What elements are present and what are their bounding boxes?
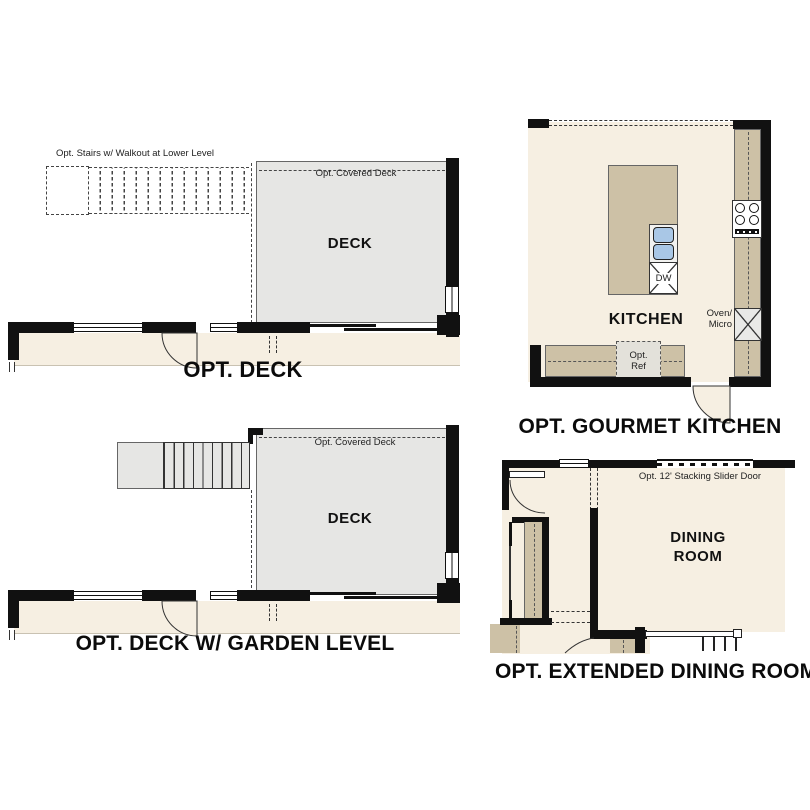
sliding-door-panel <box>310 324 376 327</box>
knob-dot <box>737 231 739 233</box>
exterior-window <box>210 323 238 332</box>
cabinet-dashed-line <box>516 626 517 653</box>
cooktop-burners <box>735 203 759 225</box>
panel-caption-extended-dining: OPT. EXTENDED DINING ROOM <box>495 660 795 684</box>
dining-top-window <box>559 459 589 468</box>
corner-wall-block <box>437 315 460 335</box>
dining-label-line2: ROOM <box>674 548 723 565</box>
opening-dashed-marks <box>269 336 277 353</box>
exterior-wall-segment <box>142 590 196 601</box>
floorplan-options-sheet: Opt. Stairs w/ Walkout at Lower Level Op… <box>0 0 810 810</box>
counter-center-dashed <box>548 361 682 362</box>
covered-deck-label: Opt. Covered Deck <box>266 168 446 179</box>
exterior-window <box>210 591 238 600</box>
burner-icon <box>735 203 745 213</box>
exterior-window <box>73 323 143 332</box>
sink-basin <box>653 244 674 260</box>
baluster <box>713 637 715 651</box>
closet-shelf <box>524 522 542 618</box>
dining-left-wall <box>502 462 509 510</box>
deck-edge-dashed <box>251 490 252 593</box>
exterior-wall-stub <box>8 322 19 360</box>
deck-right-wall <box>446 425 459 552</box>
sink-basin <box>653 227 674 243</box>
deck-right-wall <box>446 158 459 286</box>
wall-tick-marks <box>9 362 15 372</box>
dining-top-wall <box>502 460 560 468</box>
stair-treads-dashed <box>89 167 249 214</box>
cooktop <box>732 200 762 238</box>
oven-micro-cabinet <box>734 308 762 341</box>
oven-label-line2: Micro <box>709 319 732 330</box>
closet-right-wall <box>542 517 549 621</box>
ref-label-line1: Opt. <box>630 350 648 361</box>
burner-icon <box>749 215 759 225</box>
shelf-dashed-line <box>534 524 535 616</box>
island-sink <box>649 224 678 263</box>
opening-dashed-marks <box>269 604 277 621</box>
deck-right-window <box>445 286 459 313</box>
dining-room-label: DINING ROOM <box>648 528 748 566</box>
stair-treads <box>163 442 250 489</box>
cabinet <box>490 624 520 653</box>
burner-icon <box>735 215 745 225</box>
stair-landing-dashed <box>46 166 89 215</box>
ref-label-line2: Ref <box>631 361 646 372</box>
deck-room-label: DECK <box>300 235 400 252</box>
door-swing <box>509 474 546 514</box>
panel-caption-deck: OPT. DECK <box>93 357 393 383</box>
knob-dot <box>749 231 751 233</box>
slider-door-dashes <box>657 463 753 466</box>
burner-icon <box>749 203 759 213</box>
dining-top-wall <box>753 460 795 468</box>
covered-deck-label: Opt. Covered Deck <box>270 437 440 448</box>
deck-right-window <box>445 552 459 579</box>
closet-bottom-wall <box>500 618 552 625</box>
dining-middle-wall <box>590 508 598 636</box>
exterior-wall-segment <box>237 590 310 601</box>
knob-dot <box>743 231 745 233</box>
ref-label: Opt. Ref <box>630 350 648 372</box>
kitchen-bottom-wall <box>729 377 771 387</box>
opening-dashed <box>551 611 590 623</box>
stair-railing <box>645 631 742 637</box>
baluster <box>724 637 726 651</box>
kitchen-right-wall <box>761 120 771 383</box>
kitchen-wall-stub <box>528 119 549 128</box>
oven-label-line1: Oven/ <box>707 308 732 319</box>
sliding-door-panel <box>344 596 437 599</box>
stair-landing <box>117 442 164 489</box>
panel-caption-gourmet-kitchen: OPT. GOURMET KITCHEN <box>500 415 800 439</box>
exterior-wall-stub <box>8 590 19 628</box>
dishwasher-label: DW <box>655 273 673 284</box>
kitchen-top-dashed-opening <box>549 120 733 126</box>
door-swing-small <box>565 636 595 654</box>
stair-side-wall <box>635 627 645 653</box>
wall-tick-marks <box>9 630 15 640</box>
closet-left-wall <box>509 522 512 546</box>
cased-opening-dashed <box>590 468 598 510</box>
deck-edge-dashed <box>251 163 252 323</box>
sliding-door-panel <box>344 328 437 331</box>
stacking-slider-door <box>657 459 753 468</box>
closet-left-wall <box>509 600 512 618</box>
cooktop-knobs <box>735 229 759 234</box>
dishwasher: DW <box>649 262 678 294</box>
knob-dot <box>755 231 757 233</box>
optional-refrigerator: Opt. Ref <box>616 341 661 380</box>
closet-left-window <box>509 546 511 601</box>
sliding-door-panel <box>310 592 376 595</box>
corner-wall-block <box>437 583 460 603</box>
dining-top-wall <box>588 460 657 468</box>
slider-door-label: Opt. 12' Stacking Slider Door <box>600 471 800 482</box>
baluster <box>735 637 737 651</box>
kitchen-bottom-counter <box>545 345 685 377</box>
exterior-window <box>73 591 143 600</box>
stairs-walkout-label: Opt. Stairs w/ Walkout at Lower Level <box>56 148 214 159</box>
exterior-wall-segment <box>142 322 196 333</box>
interior-floor-strip <box>14 601 460 634</box>
panel-caption-deck-garden: OPT. DECK W/ GARDEN LEVEL <box>35 632 435 656</box>
kitchen-bottom-wall <box>530 377 691 387</box>
exterior-wall-segment <box>237 322 310 333</box>
dining-label-line1: DINING <box>670 529 726 546</box>
baluster <box>702 637 704 651</box>
deck-room-label: DECK <box>300 510 400 527</box>
oven-micro-label: Oven/ Micro <box>694 308 732 330</box>
kitchen-room-label: KITCHEN <box>596 311 696 329</box>
